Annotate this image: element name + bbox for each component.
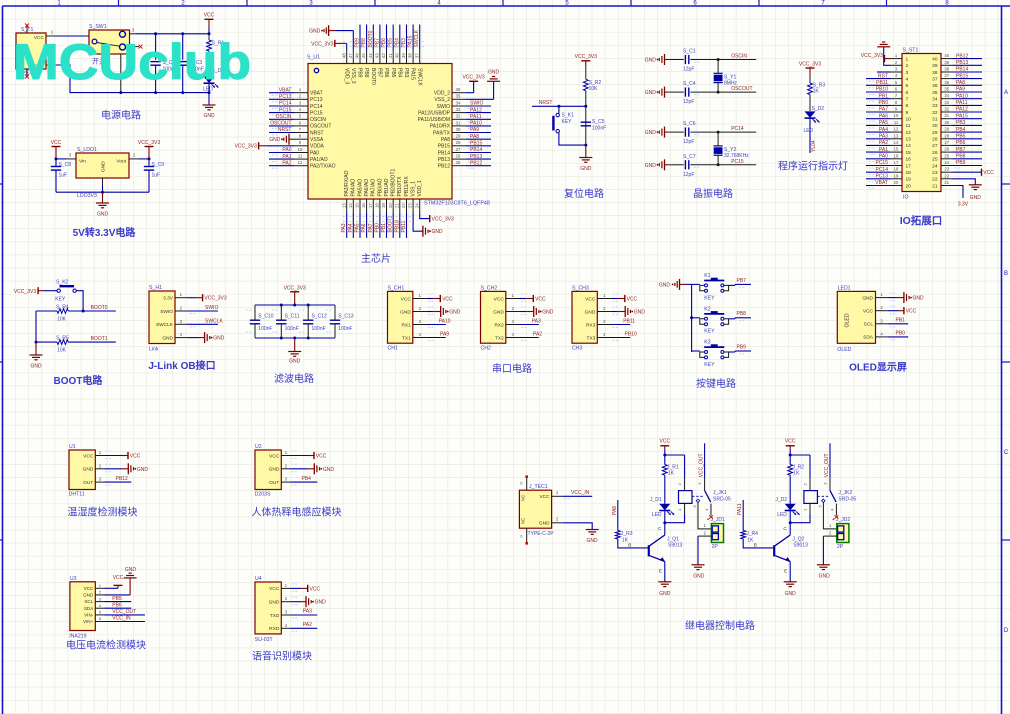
svg-text:45: 45 (361, 53, 366, 58)
svg-text:24: 24 (944, 160, 949, 165)
svg-text:D203S: D203S (255, 491, 271, 497)
svg-text:GND: GND (659, 282, 671, 288)
svg-text:S9013: S9013 (793, 542, 808, 548)
svg-text:VCC: VCC (84, 586, 94, 591)
svg-text:GND: GND (693, 574, 705, 580)
svg-text:1uF: 1uF (59, 173, 68, 179)
svg-text:13: 13 (906, 137, 912, 143)
svg-text:11: 11 (298, 154, 303, 159)
svg-text:GND: GND (659, 591, 671, 597)
svg-text:TXD: TXD (270, 613, 280, 619)
svg-text:OLED: OLED (844, 313, 850, 327)
svg-text:GND: GND (785, 591, 797, 597)
svg-text:40: 40 (944, 53, 949, 58)
svg-text:PC13: PC13 (279, 94, 292, 100)
svg-text:OLED: OLED (837, 347, 851, 353)
svg-text:PC14: PC14 (279, 101, 292, 107)
svg-text:OSCIN: OSCIN (310, 117, 326, 123)
svg-text:VCC: VCC (535, 296, 546, 302)
svg-text:VIN+: VIN+ (83, 619, 94, 624)
svg-text:VCC: VCC (113, 575, 124, 581)
svg-text:PA7/AO: PA7/AO (371, 179, 377, 197)
svg-text:40: 40 (394, 53, 399, 58)
svg-text:VCC: VCC (316, 453, 327, 459)
svg-text:PC14: PC14 (310, 104, 323, 110)
svg-text:PC15: PC15 (279, 107, 292, 113)
svg-text:VDD_2: VDD_2 (434, 91, 450, 97)
svg-text:GND: GND (645, 163, 657, 169)
svg-text:GND: GND (580, 166, 592, 172)
svg-text:PC14: PC14 (731, 126, 744, 132)
svg-text:TYPE-C-2P: TYPE-C-2P (528, 531, 555, 537)
svg-text:PA11: PA11 (956, 100, 968, 106)
svg-text:21: 21 (394, 203, 399, 208)
svg-text:PB5: PB5 (388, 38, 394, 48)
svg-text:电压电流检测模块: 电压电流检测模块 (66, 639, 146, 652)
svg-text:VCC: VCC (401, 296, 412, 302)
svg-text:PB11: PB11 (876, 80, 888, 86)
svg-text:10K: 10K (57, 347, 67, 353)
svg-text:NRST: NRST (310, 130, 324, 136)
svg-text:LED: LED (652, 512, 662, 518)
svg-text:SU-03T: SU-03T (255, 637, 274, 643)
svg-text:OUT: OUT (83, 480, 93, 486)
svg-text:PB9: PB9 (357, 68, 363, 78)
svg-text:GND: GND (645, 130, 657, 136)
svg-text:VCC_3V3: VCC_3V3 (14, 289, 36, 295)
svg-text:D: D (1004, 628, 1009, 634)
svg-text:VCC_3V3: VCC_3V3 (138, 140, 160, 146)
svg-text:VCC: VCC (204, 13, 215, 19)
svg-text:PB4: PB4 (956, 127, 966, 133)
svg-text:人体热释电感应模块: 人体热释电感应模块 (252, 506, 342, 519)
svg-text:28: 28 (944, 133, 949, 138)
svg-text:VBAT: VBAT (279, 87, 292, 93)
svg-text:22: 22 (944, 173, 949, 178)
svg-text:PB5: PB5 (112, 596, 122, 602)
svg-text:PB15: PB15 (956, 73, 968, 79)
svg-text:VSS_2: VSS_2 (434, 97, 450, 103)
svg-text:VCC: VCC (269, 586, 280, 592)
svg-text:GND: GND (862, 295, 873, 301)
svg-text:GND: GND (309, 29, 321, 35)
svg-text:S_D2: S_D2 (812, 106, 825, 112)
svg-text:PA4: PA4 (348, 223, 354, 232)
svg-text:1: 1 (906, 56, 909, 62)
svg-text:VCC_OUT: VCC_OUT (824, 453, 830, 477)
svg-text:S_CH3: S_CH3 (572, 285, 589, 291)
svg-text:PB14: PB14 (956, 67, 968, 73)
svg-text:43: 43 (375, 53, 380, 58)
svg-text:29: 29 (932, 130, 938, 136)
svg-text:5: 5 (906, 83, 909, 89)
svg-text:20: 20 (388, 203, 393, 208)
svg-text:PA3/RX/AO: PA3/RX/AO (344, 170, 350, 196)
svg-text:PA9: PA9 (470, 127, 479, 133)
svg-text:20: 20 (906, 183, 912, 189)
svg-text:SRD-05: SRD-05 (713, 496, 731, 502)
svg-text:VDDA: VDDA (310, 144, 325, 150)
svg-text:38: 38 (932, 70, 938, 76)
svg-text:36: 36 (944, 80, 949, 85)
svg-text:J_JK1: J_JK1 (713, 490, 727, 496)
svg-text:46: 46 (355, 53, 360, 58)
svg-text:10: 10 (298, 147, 303, 152)
svg-text:GND: GND (539, 521, 550, 527)
svg-text:18: 18 (906, 170, 912, 176)
svg-text:A: A (1004, 90, 1008, 96)
svg-text:PB9: PB9 (956, 160, 966, 166)
svg-text:5V转3.3V电路: 5V转3.3V电路 (73, 226, 137, 239)
svg-text:OLED显示屏: OLED显示屏 (849, 362, 907, 374)
svg-text:串口电路: 串口电路 (492, 362, 532, 375)
svg-text:2P: 2P (712, 544, 719, 550)
svg-text:PA9/TX: PA9/TX (433, 130, 451, 136)
svg-text:PB13: PB13 (438, 157, 450, 163)
svg-text:U2: U2 (255, 444, 262, 450)
svg-text:PA1: PA1 (879, 147, 888, 153)
svg-text:PA7: PA7 (879, 107, 888, 113)
svg-text:S_C12: S_C12 (312, 313, 328, 319)
svg-text:PB9: PB9 (355, 38, 361, 48)
svg-text:PB15: PB15 (470, 141, 482, 147)
svg-text:LED: LED (777, 512, 787, 518)
svg-text:1K: 1K (747, 537, 754, 543)
svg-text:24: 24 (414, 203, 419, 208)
svg-text:CH2: CH2 (481, 345, 491, 351)
svg-text:PA10: PA10 (956, 93, 968, 99)
svg-text:PB11: PB11 (623, 318, 635, 324)
svg-text:PB12: PB12 (470, 160, 482, 166)
svg-text:39: 39 (932, 63, 938, 69)
svg-text:PA2: PA2 (879, 140, 888, 146)
svg-text:26: 26 (456, 154, 461, 159)
svg-text:37: 37 (932, 76, 938, 82)
svg-text:100nF: 100nF (312, 326, 326, 332)
svg-text:S_U1: S_U1 (307, 55, 320, 61)
svg-text:10: 10 (894, 113, 899, 118)
svg-text:PB7: PB7 (374, 38, 380, 48)
svg-text:25: 25 (944, 153, 949, 158)
svg-text:KEY: KEY (704, 329, 715, 335)
svg-text:PA1: PA1 (282, 154, 291, 160)
svg-text:PB3: PB3 (403, 68, 409, 78)
svg-text:GND: GND (432, 229, 444, 235)
svg-text:VCC: VCC (983, 170, 994, 176)
svg-text:PB0: PB0 (879, 100, 889, 106)
svg-text:RX2: RX2 (494, 322, 504, 328)
svg-text:1K: 1K (668, 471, 675, 477)
svg-text:29: 29 (944, 127, 949, 132)
svg-text:S_H1: S_H1 (149, 285, 162, 291)
svg-text:10K: 10K (57, 316, 67, 322)
svg-text:S_K2: S_K2 (56, 279, 68, 285)
svg-text:25: 25 (932, 157, 938, 163)
svg-text:9: 9 (906, 110, 909, 116)
svg-text:27: 27 (944, 140, 949, 145)
svg-text:2: 2 (906, 63, 909, 69)
svg-text:VCC_3V3: VCC_3V3 (799, 62, 821, 68)
svg-text:J_JK2: J_JK2 (838, 490, 852, 496)
svg-text:1K: 1K (793, 471, 800, 477)
svg-text:GND: GND (213, 336, 225, 342)
svg-text:PB2/BOOT1: PB2/BOOT1 (391, 168, 397, 196)
svg-text:GND: GND (323, 467, 335, 473)
svg-text:PB6: PB6 (112, 602, 122, 608)
svg-text:SWCLK: SWCLK (414, 29, 420, 47)
svg-text:SWIO: SWIO (470, 101, 483, 107)
svg-text:S_C10: S_C10 (258, 313, 274, 319)
svg-text:32: 32 (944, 107, 949, 112)
svg-text:GND: GND (634, 310, 646, 316)
svg-text:6: 6 (906, 90, 909, 96)
svg-text:PA12: PA12 (470, 107, 482, 113)
svg-text:S_C7: S_C7 (683, 154, 696, 160)
svg-text:15: 15 (894, 147, 899, 152)
svg-text:U4: U4 (255, 576, 262, 582)
svg-text:37: 37 (414, 53, 419, 58)
svg-text:TX2: TX2 (495, 335, 504, 341)
svg-text:PB0: PB0 (896, 331, 906, 337)
svg-text:1K: 1K (813, 89, 820, 95)
svg-text:PB8: PB8 (361, 38, 367, 48)
svg-text:GND: GND (488, 70, 500, 76)
svg-text:3.3V: 3.3V (958, 202, 969, 208)
svg-text:K2: K2 (704, 307, 710, 313)
svg-text:32: 32 (932, 110, 938, 116)
svg-text:PA2: PA2 (303, 622, 312, 628)
svg-text:VCC: VCC (51, 140, 62, 146)
svg-text:PA8: PA8 (956, 80, 965, 86)
svg-text:CH1: CH1 (388, 345, 398, 351)
svg-text:30: 30 (944, 120, 949, 125)
svg-text:CH3: CH3 (572, 345, 582, 351)
svg-text:19: 19 (381, 203, 386, 208)
svg-text:11: 11 (906, 123, 911, 129)
svg-text:LED1: LED1 (838, 285, 851, 291)
svg-text:PB15: PB15 (438, 144, 450, 150)
svg-text:8MHz: 8MHz (724, 81, 738, 87)
svg-text:PA4/AO: PA4/AO (351, 179, 357, 197)
svg-text:VCC: VCC (660, 438, 671, 444)
svg-text:34: 34 (944, 93, 949, 98)
svg-text:12: 12 (298, 160, 303, 165)
svg-text:RST: RST (878, 73, 888, 79)
svg-text:PA5: PA5 (879, 120, 888, 126)
svg-text:S_R5: S_R5 (56, 335, 69, 341)
svg-text:15: 15 (355, 203, 360, 208)
svg-text:PA0: PA0 (879, 154, 888, 160)
svg-text:PB0/AO: PB0/AO (377, 178, 383, 196)
svg-text:GND: GND (203, 113, 215, 119)
svg-text:PA9: PA9 (440, 331, 449, 337)
svg-text:SWCLK: SWCLK (416, 68, 422, 86)
svg-text:PB6: PB6 (381, 38, 387, 48)
svg-text:B: B (628, 542, 631, 547)
svg-text:29: 29 (456, 134, 461, 139)
svg-text:16: 16 (894, 153, 899, 158)
svg-text:VCC_3V3: VCC_3V3 (432, 217, 454, 223)
svg-text:OSCIN: OSCIN (731, 54, 747, 60)
svg-text:VCC_OUT: VCC_OUT (699, 453, 705, 477)
svg-text:E: E (784, 569, 787, 574)
svg-text:GND: GND (125, 567, 137, 573)
svg-text:30: 30 (456, 127, 461, 132)
svg-text:VCC: VCC (130, 453, 141, 459)
svg-text:28: 28 (456, 140, 461, 145)
svg-text:YL04: YL04 (811, 140, 817, 152)
svg-text:GND: GND (645, 58, 657, 64)
svg-text:VCC_IN: VCC_IN (571, 490, 590, 496)
svg-text:GND: GND (493, 309, 504, 315)
svg-text:Link: Link (149, 347, 159, 353)
svg-text:10K: 10K (589, 86, 599, 92)
svg-text:3.3V: 3.3V (163, 296, 174, 302)
svg-text:NC: NC (521, 518, 526, 524)
svg-text:PA1/AO: PA1/AO (310, 157, 328, 163)
svg-text:PB0: PB0 (374, 223, 380, 233)
svg-text:PB11: PB11 (401, 220, 407, 232)
svg-text:GND: GND (542, 310, 554, 316)
svg-text:100nF: 100nF (338, 326, 352, 332)
svg-text:PA3: PA3 (341, 223, 347, 232)
svg-text:S_SW1: S_SW1 (89, 24, 107, 30)
svg-text:PA15: PA15 (410, 68, 416, 80)
svg-text:PA10: PA10 (439, 318, 451, 324)
svg-text:1uF: 1uF (152, 173, 161, 179)
svg-text:SWIO: SWIO (160, 309, 173, 315)
svg-text:32: 32 (456, 114, 461, 119)
svg-text:VCC_OUT: VCC_OUT (112, 609, 136, 615)
svg-text:13: 13 (894, 133, 899, 138)
svg-text:主芯片: 主芯片 (361, 252, 391, 265)
svg-text:PB14: PB14 (438, 150, 450, 156)
svg-text:27: 27 (932, 143, 938, 149)
svg-text:PB11/RX: PB11/RX (404, 176, 410, 197)
svg-text:PA5/AO: PA5/AO (357, 179, 363, 197)
svg-text:41: 41 (388, 53, 393, 58)
svg-text:VCC_3V3: VCC_3V3 (311, 41, 333, 47)
svg-text:VCC: VCC (442, 296, 453, 302)
svg-text:23: 23 (932, 170, 938, 176)
svg-text:GND: GND (269, 600, 280, 606)
svg-text:GND: GND (30, 364, 42, 370)
svg-text:PB7: PB7 (956, 147, 966, 153)
svg-text:30: 30 (932, 123, 938, 129)
svg-text:12: 12 (894, 127, 899, 132)
svg-text:23: 23 (944, 167, 949, 172)
svg-text:GND: GND (97, 212, 109, 218)
svg-text:IO拓展口: IO拓展口 (900, 214, 943, 227)
svg-text:PA0: PA0 (282, 147, 291, 153)
svg-text:PA10: PA10 (470, 121, 482, 127)
svg-text:OUT: OUT (269, 480, 279, 486)
svg-text:100nF: 100nF (285, 326, 299, 332)
svg-text:PA10/RX: PA10/RX (430, 124, 451, 130)
svg-text:PA6/AO: PA6/AO (364, 179, 370, 197)
svg-text:BOOT1: BOOT1 (388, 215, 394, 232)
svg-text:VCC: VCC (83, 453, 94, 459)
svg-text:S_C11: S_C11 (285, 313, 300, 319)
svg-text:31: 31 (456, 120, 461, 125)
svg-text:SWIO: SWIO (437, 104, 450, 110)
svg-text:39: 39 (944, 60, 949, 65)
svg-text:31: 31 (932, 117, 938, 123)
svg-text:GND: GND (645, 90, 657, 96)
svg-text:16: 16 (906, 157, 912, 163)
svg-text:PC15: PC15 (731, 159, 744, 165)
svg-text:2P: 2P (837, 544, 844, 550)
svg-text:20: 20 (894, 180, 899, 185)
svg-text:INA219: INA219 (69, 634, 86, 640)
svg-text:S9013: S9013 (668, 542, 683, 548)
svg-text:38: 38 (408, 53, 413, 58)
svg-text:19: 19 (906, 177, 912, 183)
svg-text:PA3: PA3 (879, 134, 888, 140)
svg-text:PB1: PB1 (896, 318, 906, 324)
svg-text:SDA: SDA (84, 606, 94, 611)
svg-text:36: 36 (456, 87, 461, 92)
svg-text:S_C5: S_C5 (592, 119, 605, 125)
svg-text:12pF: 12pF (683, 99, 694, 105)
svg-text:PA7: PA7 (368, 223, 374, 232)
svg-text:OSCIN: OSCIN (276, 114, 292, 120)
svg-text:PA11/USB/DM: PA11/USB/DM (418, 117, 450, 123)
svg-text:24: 24 (932, 163, 938, 169)
svg-text:VCC_3V3: VCC_3V3 (861, 53, 883, 59)
svg-text:SRD-05: SRD-05 (838, 496, 856, 502)
svg-text:U3: U3 (70, 576, 77, 582)
svg-text:PB12: PB12 (116, 476, 128, 482)
svg-text:VBAT: VBAT (875, 180, 888, 186)
svg-text:VCC_3V3: VCC_3V3 (575, 54, 597, 60)
svg-text:KEY: KEY (704, 295, 715, 301)
svg-text:S_K1: S_K1 (562, 113, 574, 119)
svg-text:Vin: Vin (79, 159, 86, 165)
svg-text:32.768KHz: 32.768KHz (724, 153, 749, 159)
svg-text:VDD_3: VDD_3 (343, 68, 349, 84)
svg-text:GND: GND (585, 309, 596, 315)
svg-text:PA11: PA11 (470, 114, 482, 120)
svg-text:S_C1: S_C1 (683, 49, 696, 55)
svg-text:14: 14 (894, 140, 899, 145)
svg-text:PB7: PB7 (737, 278, 747, 284)
svg-text:15: 15 (906, 150, 912, 156)
svg-text:TX3: TX3 (586, 335, 595, 341)
svg-text:28: 28 (932, 137, 938, 143)
svg-text:19: 19 (894, 173, 899, 178)
svg-text:PA5: PA5 (355, 223, 361, 232)
svg-text:PB12: PB12 (956, 53, 968, 59)
svg-text:VCC: VCC (269, 453, 280, 459)
svg-text:J_D1: J_D1 (650, 497, 662, 503)
svg-text:J_JD1: J_JD1 (711, 517, 725, 523)
svg-text:VSS_1: VSS_1 (411, 181, 417, 197)
svg-text:PA8: PA8 (470, 134, 479, 140)
svg-text:J_TEC1: J_TEC1 (529, 484, 548, 490)
svg-text:47: 47 (348, 53, 353, 58)
svg-text:PB6: PB6 (383, 68, 389, 78)
svg-text:PB1: PB1 (381, 223, 387, 233)
svg-text:OSCOUT: OSCOUT (270, 121, 291, 127)
svg-text:4: 4 (906, 76, 909, 82)
svg-text:PC13: PC13 (310, 97, 323, 103)
svg-text:PA0: PA0 (310, 150, 319, 156)
svg-text:PB1: PB1 (879, 93, 889, 99)
svg-text:VDD_1: VDD_1 (417, 180, 423, 196)
svg-text:PA6: PA6 (361, 223, 367, 232)
svg-text:SCL: SCL (864, 322, 874, 328)
